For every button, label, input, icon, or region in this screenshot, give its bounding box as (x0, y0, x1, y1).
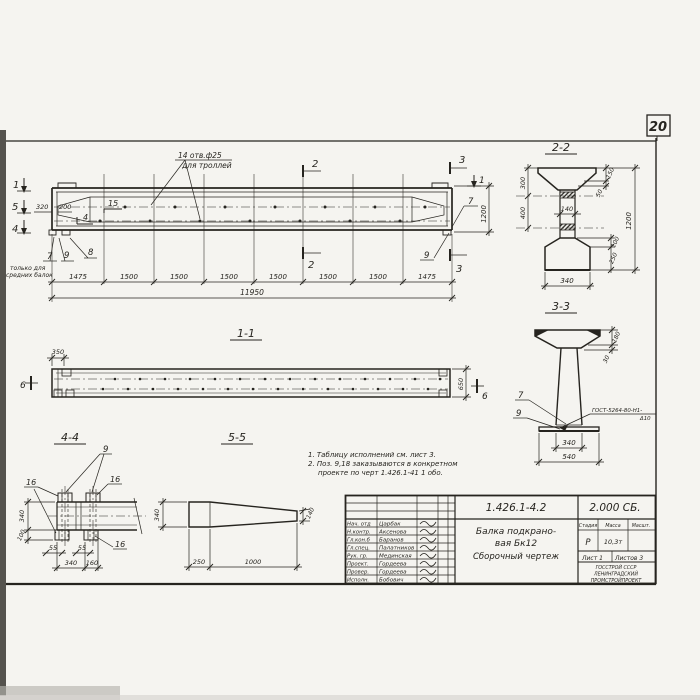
dim-1000-55: 1000 (245, 558, 262, 566)
pos-label-16-bottom: 16 (115, 540, 125, 549)
dim-350: 350 (52, 348, 64, 356)
subject-line-1: Балка подкрано- (476, 527, 556, 537)
role-label: Рук. гр. (347, 554, 368, 560)
role-label: Провер. (347, 570, 369, 576)
role-label: Гл.спец. (347, 546, 370, 552)
dim-340-left44: 340 (18, 510, 26, 522)
notes-block: 1. Таблицу исполнений см. лист 3. 2. Поз… (308, 451, 458, 477)
weld-note-line2: Δ10 (639, 416, 651, 422)
doc-code: 2.000 СБ. (589, 502, 640, 514)
role-name: Гордеева (379, 562, 407, 568)
org-line-1: ГОССТРОЙ СССР (596, 564, 637, 571)
cut-marks-3 (450, 162, 481, 261)
pos-label-9-left: 9 (64, 251, 69, 261)
role-label: Гл.кон.б (347, 538, 371, 544)
signature-marks (420, 522, 436, 583)
sheet-number-box: 20 (647, 115, 670, 141)
dim-250: 250 (608, 252, 619, 266)
drawing-sheet: 20 (0, 0, 700, 700)
pos-label-8: 8 (88, 248, 94, 258)
pos7-note-line1: только для (10, 265, 46, 272)
cut-mark-6-right: 6 (482, 392, 488, 402)
view-5-5 (158, 444, 310, 571)
dim-segment: 1475 (69, 273, 87, 281)
pos-label-7-right: 7 (468, 197, 474, 207)
cut-mark-4-left: 4 (12, 224, 18, 235)
section-3-3 (513, 313, 656, 466)
dim-400: 400 (519, 207, 527, 219)
role-name: Гордеева (379, 570, 407, 576)
dim-200: 200 (59, 203, 71, 211)
dim-1200-section: 1200 (625, 212, 633, 230)
dim-segment: 1500 (170, 273, 188, 281)
subject-line-2: вая Бк12 (495, 539, 537, 549)
role-label: Н.контр. (347, 530, 371, 536)
pos-label-15: 15 (108, 199, 118, 208)
sheets-label: Листов 3 (614, 555, 643, 562)
cut-marks-2 (303, 165, 321, 259)
pos-label-7-left: 7 (47, 252, 53, 262)
dim-340-bottom22: 340 (560, 277, 574, 285)
cut-mark-1-left: 1 (13, 180, 19, 191)
dim-segment: 1500 (369, 273, 387, 281)
dim-55-b: 55 (78, 544, 86, 552)
dim-segment: 1500 (269, 273, 287, 281)
cut-mark-3-bottom: 3 (456, 264, 462, 275)
pos-label-16-top: 16 (110, 475, 120, 484)
role-name: Царбак (379, 522, 401, 528)
dim-340-55: 340 (153, 509, 161, 521)
scan-artifacts (0, 130, 700, 700)
callout-line1: 14 отв.ф25 (178, 151, 222, 160)
pos-label-9-view44: 9 (103, 445, 108, 455)
role-name: Бобович (379, 578, 404, 584)
view-1-1 (25, 340, 484, 401)
dim-30: 30 (602, 354, 612, 364)
view-1-1-title: 1-1 (237, 327, 255, 340)
role-name: Палатников (379, 546, 414, 552)
pos-label-16-left: 16 (26, 478, 36, 487)
dim-650: 650 (457, 378, 465, 390)
sheet-label: Лист 1 (581, 555, 603, 562)
cut-mark-4-inner: 4 (83, 213, 88, 222)
section-3-3-title: 3-3 (552, 300, 570, 313)
value-mass: 10,3т (604, 538, 622, 546)
dim-140-55: 140 (305, 507, 316, 521)
cut-mark-6-left: 6 (20, 381, 26, 391)
dim-segment: 1475 (418, 273, 436, 281)
drawing-canvas: 20 (0, 0, 700, 700)
sheet-number: 20 (649, 120, 667, 135)
dim-segment: 1500 (319, 273, 337, 281)
role-name: Аксенова (378, 530, 407, 536)
view-5-5-title: 5-5 (228, 431, 246, 444)
section-2-2-title: 2-2 (552, 141, 570, 154)
dim-250-55: 250 (193, 558, 205, 566)
dim-300: 300 (519, 177, 527, 189)
header-scale: Масшт. (632, 523, 650, 529)
pos-label-9-section33: 9 (516, 409, 521, 419)
dim-beam-height: 1200 (480, 205, 488, 223)
role-label: Нач. отд (347, 522, 371, 528)
dim-180: 180 (611, 331, 622, 345)
cut-mark-5-left: 5 (12, 202, 18, 213)
dim-segment: 1500 (120, 273, 138, 281)
note-line-2: 2. Поз. 9,18 заказываются в конкретном (308, 460, 458, 468)
dim-50: 50 (595, 188, 605, 198)
role-label: Исполн. (347, 578, 369, 584)
pos-label-9-right: 9 (424, 251, 429, 261)
org-line-2: ЛЕНИНГРАДСКИЙ (593, 571, 638, 578)
cut-mark-1-right: 1 (479, 176, 485, 186)
org-line-3: ПРОМСТРОЙПРОЕКТ (591, 577, 643, 584)
dim-340-section33: 340 (562, 439, 576, 447)
role-name: Баранов (379, 538, 404, 544)
dim-140-web: 140 (561, 205, 573, 213)
dim-total: 11950 (240, 288, 264, 297)
dim-540: 540 (562, 453, 576, 461)
value-stage: Р (585, 538, 591, 548)
role-label: Проект. (347, 562, 369, 568)
callout-line2: для троллей (181, 161, 232, 170)
cut-mark-3-top: 3 (459, 155, 465, 166)
dim-160: 160 (86, 559, 98, 567)
role-name: Мединская (379, 554, 412, 560)
dim-55-a: 55 (49, 544, 57, 552)
note-line-1: 1. Таблицу исполнений см. лист 3. (308, 451, 436, 459)
section-2-2 (516, 154, 640, 290)
title-block-roles: Нач. отд Царбак Н.контр. Аксенова Гл.кон… (347, 522, 414, 584)
elevation-view (49, 174, 452, 302)
sheet-frame (4, 138, 656, 584)
note-line-3: проекте по черт 1.426.1-41 1 обо. (318, 469, 443, 477)
weld-note-line1: ГОСТ-5264-80-Н1- (592, 408, 642, 414)
pos7-note-line2: средних балок (6, 272, 53, 279)
view-4-4-title: 4-4 (61, 431, 79, 444)
doc-number: 1.426.1-4.2 (486, 502, 547, 514)
dim-320: 320 (36, 203, 48, 211)
dim-segment: 1500 (220, 273, 238, 281)
cut-mark-2-bottom: 2 (308, 260, 314, 271)
elevation-dim-labels: 1475 1500 1500 1500 1500 1500 1500 1475 … (69, 273, 436, 297)
dim-150: 150 (605, 167, 616, 181)
header-mass: Масса (605, 523, 620, 529)
cut-mark-2-top: 2 (312, 159, 318, 170)
subject-line-3: Сборочный чертеж (473, 552, 559, 562)
dim-340-bottom44: 340 (65, 559, 77, 567)
header-stage: Стадия (579, 523, 598, 529)
pos-label-7-section33: 7 (518, 391, 524, 401)
